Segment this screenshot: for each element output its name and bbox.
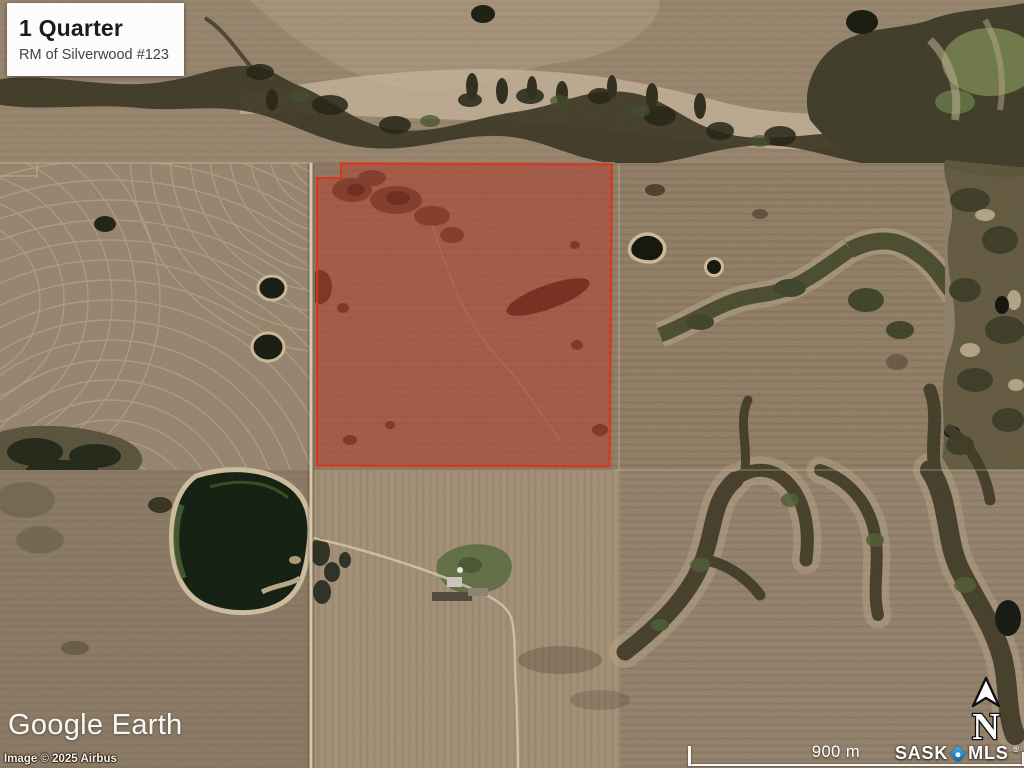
brand-mls: MLS xyxy=(968,743,1008,764)
attribution-text: Image © 2025 Airbus xyxy=(4,753,117,765)
sask-mls-logo: SASK MLS ® xyxy=(895,743,1020,764)
satellite-imagery xyxy=(0,0,1024,768)
north-label: N xyxy=(972,706,999,746)
mls-diamond-icon xyxy=(950,745,967,762)
listing-card: 1 Quarter RM of Silverwood #123 xyxy=(7,3,184,76)
north-indicator: N xyxy=(963,676,1009,746)
listing-subtitle: RM of Silverwood #123 xyxy=(19,48,171,64)
listing-title: 1 Quarter xyxy=(19,16,171,41)
brand-sask: SASK xyxy=(895,743,948,764)
satellite-map[interactable]: 1 Quarter RM of Silverwood #123 Google E… xyxy=(0,0,1024,768)
north-arrow-icon xyxy=(973,678,999,706)
brand-registered: ® xyxy=(1013,744,1020,754)
highlighted-parcel[interactable] xyxy=(317,164,612,467)
google-earth-logo: Google Earth xyxy=(8,709,183,742)
